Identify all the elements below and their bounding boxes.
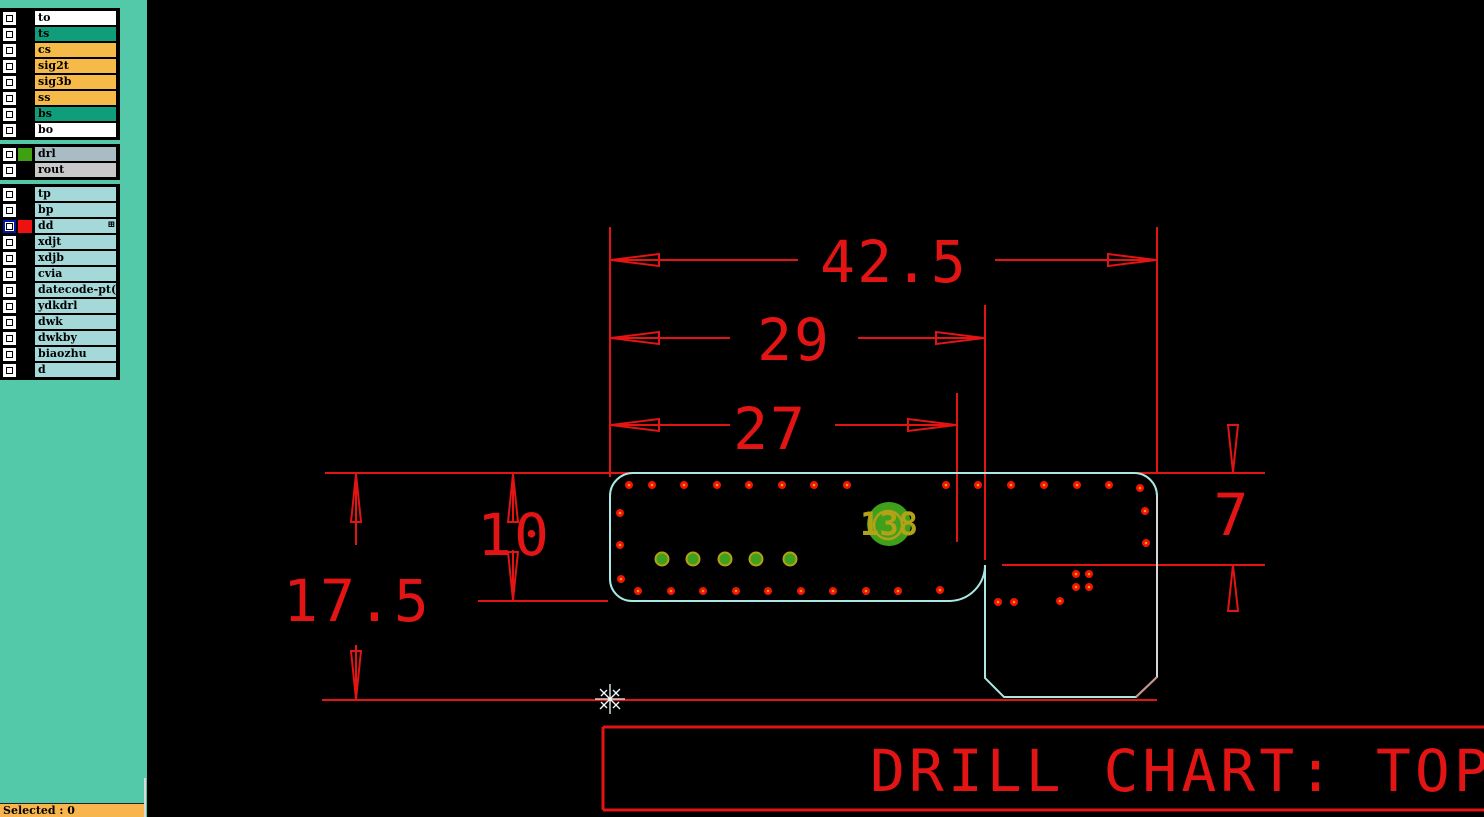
layer-color-swatch[interactable] [18, 316, 32, 329]
drill-hole-center [1088, 586, 1091, 589]
drill-hole-center [670, 590, 673, 593]
drill-hole-center [767, 590, 770, 593]
drill-hole-center [1010, 484, 1013, 487]
layer-row: biaozhu [3, 346, 117, 362]
drill-hole-center [702, 590, 705, 593]
layer-name-label[interactable]: cs [34, 42, 117, 58]
drill-hole-center [619, 544, 622, 547]
checkbox-inner-icon [6, 223, 13, 230]
layer-visibility-checkbox[interactable] [3, 124, 16, 137]
layer-color-swatch[interactable] [18, 300, 32, 313]
drill-hole-center [997, 601, 1000, 604]
checkbox-inner-icon [6, 111, 13, 118]
drill-hole-center [1043, 484, 1046, 487]
drill-hole-center [1145, 542, 1148, 545]
checkbox-inner-icon [6, 47, 13, 54]
dim-7: 7 [1214, 481, 1251, 549]
layer-visibility-checkbox[interactable] [3, 76, 16, 89]
status-bar: Selected : 0 [0, 803, 144, 817]
layer-name-label[interactable]: bp [34, 202, 117, 218]
layer-row: xdjb [3, 250, 117, 266]
dim-42-5: 42.5 [820, 228, 968, 296]
drill-hole-center [1059, 600, 1062, 603]
layer-row: d [3, 362, 117, 378]
layer-row: bs [3, 106, 117, 122]
layer-color-swatch[interactable] [18, 188, 32, 201]
layer-name-label[interactable]: d [34, 362, 117, 378]
layer-color-swatch[interactable] [18, 364, 32, 377]
application-window: 138 42.5 29 27 17.5 10 7 DRILL CHART: TO… [0, 0, 1484, 817]
layer-color-swatch[interactable] [18, 332, 32, 345]
layer-row: bp [3, 202, 117, 218]
layer-visibility-checkbox[interactable] [3, 252, 16, 265]
layer-name-label[interactable]: biaozhu [34, 346, 117, 362]
layer-visibility-checkbox[interactable] [3, 268, 16, 281]
component-pad [656, 553, 669, 566]
drill-hole-center [748, 484, 751, 487]
layer-row: sig2t [3, 58, 117, 74]
layer-visibility-checkbox[interactable] [3, 108, 16, 121]
layer-visibility-checkbox[interactable] [3, 236, 16, 249]
layer-name-label[interactable]: bo [34, 122, 117, 138]
drill-hole-center [846, 484, 849, 487]
layer-visibility-checkbox[interactable] [3, 300, 16, 313]
layer-color-swatch[interactable] [18, 148, 32, 161]
layer-visibility-checkbox[interactable] [3, 44, 16, 57]
layer-name-label[interactable]: xdjb [34, 250, 117, 266]
layer-name-label[interactable]: to [34, 10, 117, 26]
layer-row: drl [3, 146, 117, 162]
layer-visibility-checkbox[interactable] [3, 148, 16, 161]
layer-row: cs [3, 42, 117, 58]
layer-name-label[interactable]: sig3b [34, 74, 117, 90]
checkbox-inner-icon [6, 271, 13, 278]
layer-visibility-checkbox[interactable] [3, 164, 16, 177]
drill-hole-center [1139, 487, 1142, 490]
layer-group: totscssig2tsig3bssbsbo [0, 8, 120, 140]
layer-name-label[interactable]: datecode-pt( [34, 282, 117, 298]
layer-color-swatch[interactable] [18, 44, 32, 57]
checkbox-inner-icon [6, 367, 13, 374]
layer-visibility-checkbox[interactable] [3, 12, 16, 25]
layer-visibility-checkbox[interactable] [3, 364, 16, 377]
dim-29: 29 [757, 306, 831, 374]
component-pad [687, 553, 700, 566]
drill-hole-center [1144, 510, 1147, 513]
drill-hole-center [620, 578, 623, 581]
layer-row: datecode-pt( [3, 282, 117, 298]
layer-color-swatch[interactable] [18, 92, 32, 105]
dim-27: 27 [733, 395, 807, 463]
checkbox-inner-icon [6, 151, 13, 158]
drill-hole-center [1013, 601, 1016, 604]
drill-hole-center [1076, 484, 1079, 487]
layer-color-swatch[interactable] [18, 236, 32, 249]
layer-name-label[interactable]: tp [34, 186, 117, 202]
drill-hole-center [619, 512, 622, 515]
layer-visibility-checkbox[interactable] [3, 284, 16, 297]
drill-hole-center [1088, 573, 1091, 576]
layer-name-label[interactable]: ydkdrl [34, 298, 117, 314]
layer-row: ss [3, 90, 117, 106]
checkbox-inner-icon [6, 15, 13, 22]
layer-panel: totscssig2tsig3bssbsbodrlrouttpbpdd⊞xdjt… [0, 8, 120, 384]
layer-name-label[interactable]: dwkby [34, 330, 117, 346]
drill-hole-center [832, 590, 835, 593]
layer-name-label[interactable]: bs [34, 106, 117, 122]
layer-visibility-checkbox[interactable] [3, 92, 16, 105]
layer-visibility-checkbox[interactable] [3, 188, 16, 201]
drill-hole-center [628, 484, 631, 487]
layer-visibility-checkbox[interactable] [3, 332, 16, 345]
layer-name-label[interactable]: rout [34, 162, 117, 178]
layer-row: dd⊞ [3, 218, 117, 234]
layer-row: rout [3, 162, 117, 178]
checkbox-inner-icon [6, 127, 13, 134]
drill-hole-center [977, 484, 980, 487]
layer-group: drlrout [0, 144, 120, 180]
drill-hole-center [1075, 573, 1078, 576]
layer-color-swatch[interactable] [18, 164, 32, 177]
layer-row: ydkdrl [3, 298, 117, 314]
drill-hole-center [1108, 484, 1111, 487]
layer-visibility-checkbox[interactable] [3, 220, 16, 233]
sidebar-divider[interactable] [144, 778, 146, 817]
layer-visibility-checkbox[interactable] [3, 28, 16, 41]
checkbox-inner-icon [6, 167, 13, 174]
drill-hole-center [637, 590, 640, 593]
drill-hole-center [683, 484, 686, 487]
pad-number-label: 138 [860, 505, 918, 543]
layer-row: to [3, 10, 117, 26]
drill-hole-center [865, 590, 868, 593]
layer-color-swatch[interactable] [18, 348, 32, 361]
drill-hole-center [813, 484, 816, 487]
checkbox-inner-icon [6, 191, 13, 198]
layer-name-label[interactable]: dwk [34, 314, 117, 330]
drill-hole-center [800, 590, 803, 593]
layer-visibility-checkbox[interactable] [3, 60, 16, 73]
large-pad: 138 [860, 502, 918, 546]
checkbox-inner-icon [6, 287, 13, 294]
cad-canvas[interactable]: 138 42.5 29 27 17.5 10 7 DRILL CHART: TO… [0, 0, 1484, 817]
checkbox-inner-icon [6, 95, 13, 102]
component-pad [719, 553, 732, 566]
layer-row: bo [3, 122, 117, 138]
layer-sidebar: totscssig2tsig3bssbsbodrlrouttpbpdd⊞xdjt… [0, 0, 147, 817]
checkbox-inner-icon [6, 79, 13, 86]
drill-hole-center [651, 484, 654, 487]
checkbox-inner-icon [6, 31, 13, 38]
layer-name-label[interactable]: xdjt [34, 234, 117, 250]
layer-color-swatch[interactable] [18, 28, 32, 41]
component-pad [784, 553, 797, 566]
checkbox-inner-icon [6, 239, 13, 246]
layer-row: tp [3, 186, 117, 202]
dim-10: 10 [477, 501, 551, 569]
layer-color-swatch[interactable] [18, 60, 32, 73]
drill-chart-title: DRILL CHART: TOP [870, 737, 1484, 805]
canvas-background [147, 0, 1484, 817]
drill-hole-center [781, 484, 784, 487]
drill-hole-center [939, 589, 942, 592]
drill-hole-center [716, 484, 719, 487]
checkbox-inner-icon [6, 255, 13, 262]
layer-color-swatch[interactable] [18, 12, 32, 25]
layer-visibility-checkbox[interactable] [3, 348, 16, 361]
layer-name-label[interactable]: dd⊞ [34, 218, 117, 234]
dim-17-5: 17.5 [283, 567, 431, 635]
component-pad [750, 553, 763, 566]
layer-name-label[interactable]: cvia [34, 266, 117, 282]
layer-name-label[interactable]: ss [34, 90, 117, 106]
layer-color-swatch[interactable] [18, 252, 32, 265]
checkbox-inner-icon [6, 351, 13, 358]
layer-name-label[interactable]: sig2t [34, 58, 117, 74]
layer-group: tpbpdd⊞xdjtxdjbcviadatecode-pt(ydkdrldwk… [0, 184, 120, 380]
drill-hole-center [735, 590, 738, 593]
layer-color-swatch[interactable] [18, 268, 32, 281]
layer-expand-icon[interactable]: ⊞ [107, 221, 115, 230]
layer-color-swatch[interactable] [18, 124, 32, 137]
checkbox-inner-icon [6, 63, 13, 70]
layer-row: cvia [3, 266, 117, 282]
layer-color-swatch[interactable] [18, 108, 32, 121]
drill-hole-center [897, 590, 900, 593]
layer-row: xdjt [3, 234, 117, 250]
drill-hole-center [945, 484, 948, 487]
layer-row: dwk [3, 314, 117, 330]
layer-row: sig3b [3, 74, 117, 90]
checkbox-inner-icon [6, 335, 13, 342]
layer-name-label[interactable]: ts [34, 26, 117, 42]
layer-color-swatch[interactable] [18, 76, 32, 89]
layer-visibility-checkbox[interactable] [3, 204, 16, 217]
layer-color-swatch[interactable] [18, 204, 32, 217]
layer-row: ts [3, 26, 117, 42]
layer-visibility-checkbox[interactable] [3, 316, 16, 329]
layer-row: dwkby [3, 330, 117, 346]
drill-hole-center [1075, 586, 1078, 589]
layer-name-label[interactable]: drl [34, 146, 117, 162]
checkbox-inner-icon [6, 207, 13, 214]
layer-color-swatch[interactable] [18, 284, 32, 297]
checkbox-inner-icon [6, 319, 13, 326]
checkbox-inner-icon [6, 303, 13, 310]
layer-color-swatch[interactable] [18, 220, 32, 233]
